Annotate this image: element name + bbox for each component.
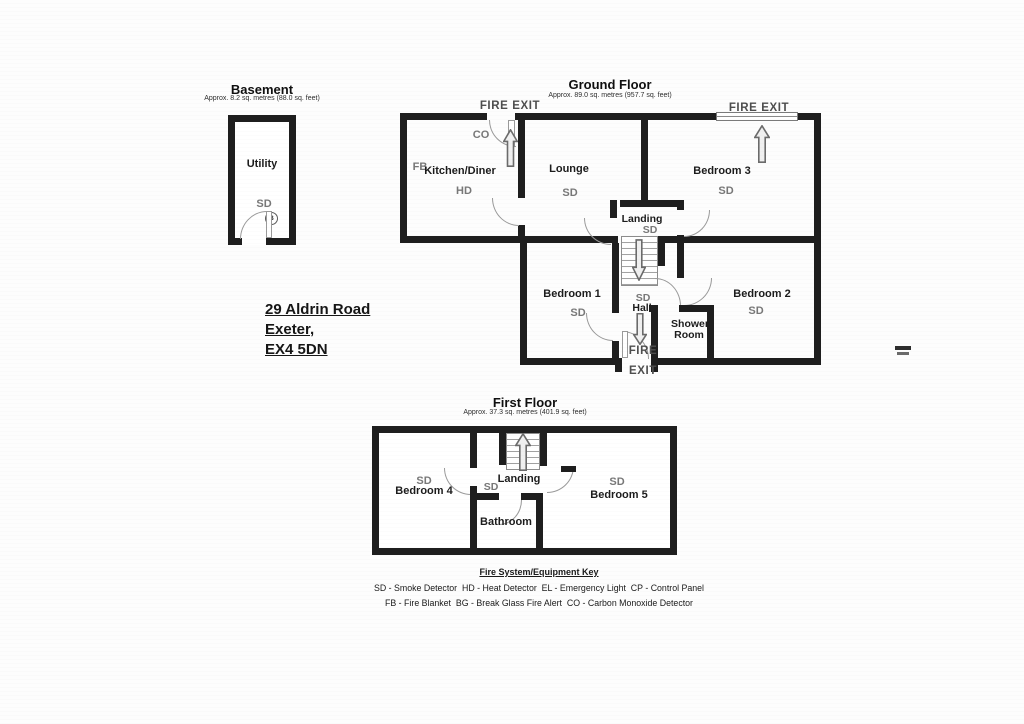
first-floor-subtitle: Approx. 37.3 sq. metres (401.9 sq. feet) bbox=[395, 409, 655, 416]
smoke-detector-label: SD bbox=[471, 481, 511, 493]
smoke-detector-label: SD bbox=[706, 185, 746, 197]
room-bedroom5-label: Bedroom 5 bbox=[569, 489, 669, 501]
wall-segment bbox=[677, 235, 684, 243]
wall-segment bbox=[641, 113, 648, 200]
wall-segment bbox=[677, 243, 684, 278]
wall-segment bbox=[400, 236, 618, 243]
wall-segment bbox=[400, 113, 487, 120]
smoke-detector-label: SD bbox=[550, 187, 590, 199]
room-bedroom4-label: Bedroom 4 bbox=[374, 485, 474, 497]
door-arc bbox=[240, 211, 267, 239]
smoke-detector-label: SD bbox=[597, 476, 637, 488]
scan-artifact bbox=[895, 346, 911, 350]
ground-floor-title: Ground Floor bbox=[480, 77, 740, 92]
room-kitchen-label: Kitchen/Diner bbox=[410, 165, 510, 177]
fire-system-key: Fire System/Equipment Key SD - Smoke Det… bbox=[358, 567, 720, 608]
room-bedroom3-label: Bedroom 3 bbox=[672, 165, 772, 177]
floorplan-page: Basement Approx. 8.2 sq. metres (88.0 sq… bbox=[0, 0, 1024, 724]
door-arc bbox=[684, 210, 710, 237]
wall-segment bbox=[470, 433, 477, 468]
room-utility-label: Utility bbox=[235, 158, 289, 170]
key-line1: SD - Smoke Detector HD - Heat Detector E… bbox=[358, 583, 720, 593]
fire-exit-label-bottom-line1: FIRE bbox=[613, 345, 673, 357]
door-arc bbox=[684, 278, 712, 306]
fire-exit-label-top-left: FIRE EXIT bbox=[447, 100, 573, 112]
wall-segment bbox=[520, 358, 622, 365]
basement-plan: Utility SD B bbox=[228, 115, 296, 245]
wall-segment bbox=[400, 113, 407, 243]
ground-floor-subtitle: Approx. 89.0 sq. metres (957.7 sq. feet) bbox=[480, 92, 740, 99]
key-title: Fire System/Equipment Key bbox=[358, 567, 720, 577]
door-opening bbox=[242, 238, 266, 245]
wall-segment bbox=[620, 200, 683, 207]
wall-segment bbox=[515, 113, 716, 120]
stairs-arrow-down bbox=[632, 239, 646, 281]
wall-segment bbox=[677, 200, 684, 210]
wall-segment bbox=[540, 433, 547, 466]
smoke-detector-label: SD bbox=[736, 305, 776, 317]
co-detector-label: CO bbox=[461, 129, 501, 141]
ground-floor-plan: CO FB Kitchen/Diner HD Lounge SD Bedroom… bbox=[400, 113, 821, 365]
wall-segment bbox=[520, 236, 527, 365]
heat-detector-label: HD bbox=[444, 185, 484, 197]
first-floor-title: First Floor bbox=[395, 395, 655, 410]
wall-segment bbox=[499, 433, 506, 465]
room-lounge-label: Lounge bbox=[519, 163, 619, 175]
room-shower-label-line2: Room bbox=[649, 329, 729, 341]
wall-segment bbox=[470, 493, 499, 500]
property-address: 29 Aldrin Road Exeter, EX4 5DN bbox=[265, 302, 370, 362]
wall-segment bbox=[612, 243, 619, 313]
wall-segment bbox=[658, 236, 665, 266]
fire-exit-arrow-up bbox=[754, 125, 770, 163]
address-line3: EX4 5DN bbox=[265, 342, 370, 357]
smoke-detector-label: SD bbox=[630, 224, 670, 236]
door-leaf bbox=[266, 211, 272, 238]
door-jamb bbox=[561, 466, 576, 472]
first-floor-plan: SD Bedroom 4 Landing SD Bathroom SD Bedr… bbox=[372, 426, 677, 555]
wall-segment bbox=[661, 236, 821, 243]
fire-exit-window bbox=[716, 112, 798, 121]
key-line2: FB - Fire Blanket BG - Break Glass Fire … bbox=[358, 598, 720, 608]
room-bathroom-label: Bathroom bbox=[456, 516, 556, 528]
wall-segment bbox=[518, 225, 525, 236]
wall-segment bbox=[651, 358, 821, 365]
room-hall-label: Hall bbox=[622, 302, 662, 314]
scan-artifact bbox=[897, 352, 909, 355]
basement-subtitle: Approx. 8.2 sq. metres (88.0 sq. feet) bbox=[182, 95, 342, 102]
room-bedroom1-label: Bedroom 1 bbox=[522, 288, 622, 300]
fire-exit-arrow-up bbox=[503, 129, 518, 167]
smoke-detector-label: SD bbox=[558, 307, 598, 319]
door-arc bbox=[492, 198, 519, 226]
smoke-detector-label: SD bbox=[244, 198, 284, 210]
wall-segment bbox=[518, 113, 525, 198]
fire-exit-arrow-down bbox=[633, 313, 647, 345]
address-line1: 29 Aldrin Road bbox=[265, 302, 370, 317]
room-bedroom2-label: Bedroom 2 bbox=[712, 288, 812, 300]
stairs-arrow-up bbox=[515, 433, 531, 471]
fire-exit-label-bottom-line2: EXIT bbox=[613, 365, 673, 377]
address-line2: Exeter, bbox=[265, 322, 370, 337]
